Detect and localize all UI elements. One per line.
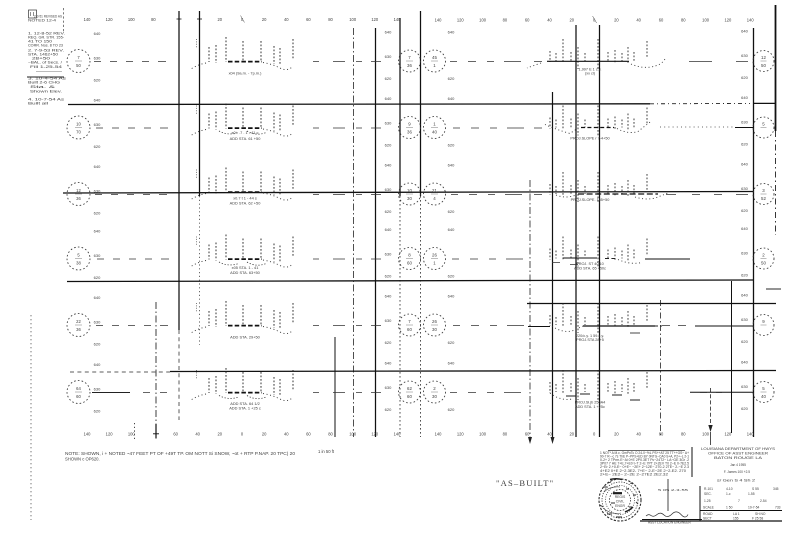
svg-text:PROJ.SLOPE. 155+50: PROJ.SLOPE. 155+50 (571, 198, 610, 202)
svg-text:26: 26 (432, 319, 437, 324)
svg-text:21: 21 (432, 188, 437, 193)
svg-text:(xx cl): (xx cl) (585, 72, 596, 76)
svg-text:SH NO: SH NO (755, 512, 766, 516)
svg-text:120: 120 (371, 432, 379, 437)
svg-text:620: 620 (94, 144, 101, 149)
svg-text:52: 52 (761, 196, 766, 201)
svg-text:30: 30 (432, 394, 437, 399)
svg-text:ENGR: ENGR (615, 504, 625, 508)
svg-text:640: 640 (94, 164, 101, 169)
svg-text:60: 60 (76, 394, 81, 399)
svg-text:620: 620 (741, 208, 748, 213)
svg-text:s/ Gen S 4 Sh 2: s/ Gen S 4 Sh 2 (717, 479, 755, 483)
svg-text:120: 120 (457, 18, 465, 23)
svg-text:60: 60 (306, 17, 311, 22)
svg-text:64: 64 (76, 386, 81, 391)
svg-text:100: 100 (349, 432, 357, 437)
svg-text:38: 38 (76, 261, 81, 266)
svg-text:630: 630 (385, 252, 392, 257)
svg-text:620: 620 (385, 340, 392, 345)
svg-text:630: 630 (741, 317, 748, 322)
svg-text:36: 36 (76, 196, 81, 201)
svg-text:PROJ. ST 40 10: PROJ. ST 40 10 (576, 262, 604, 266)
svg-text:60: 60 (407, 261, 412, 266)
svg-text:REGIS: REGIS (615, 495, 626, 499)
svg-text:140: 140 (747, 18, 755, 23)
svg-text:630: 630 (94, 320, 101, 325)
svg-text:630: 630 (741, 186, 748, 191)
svg-text:50: 50 (76, 63, 81, 68)
svg-text:140: 140 (435, 18, 443, 23)
svg-text:CORR. Nos. 8 TO 23: CORR. Nos. 8 TO 23 (28, 44, 63, 48)
svg-text:20: 20 (570, 18, 575, 23)
svg-text:630: 630 (741, 53, 748, 58)
svg-text:640: 640 (385, 30, 392, 35)
svg-text:50: 50 (761, 63, 766, 68)
svg-text:630: 630 (741, 251, 748, 256)
svg-text:640: 640 (448, 96, 455, 101)
svg-text:80: 80 (328, 17, 333, 22)
svg-text:LA 1: LA 1 (733, 512, 740, 516)
svg-text:620: 620 (741, 75, 748, 80)
svg-text:100: 100 (128, 432, 136, 437)
svg-text:20: 20 (570, 432, 575, 437)
svg-text:Built 2-6 CHG: Built 2-6 CHG (28, 81, 61, 85)
svg-text:12: 12 (761, 55, 766, 60)
svg-text:630: 630 (741, 384, 748, 389)
svg-text:CIVIL: CIVIL (616, 500, 625, 504)
svg-text:630: 630 (385, 385, 392, 390)
svg-text:1-55: 1-55 (748, 492, 755, 496)
svg-text:Sta. &: Sta. & (30, 85, 57, 89)
svg-text:620: 620 (741, 339, 748, 344)
svg-text:Built all: Built all (28, 102, 48, 106)
svg-text:40: 40 (636, 432, 641, 437)
svg-text:20: 20 (218, 432, 223, 437)
svg-text:5 05 2-3-55: 5 05 2-3-55 (658, 488, 689, 492)
svg-text:640: 640 (741, 162, 748, 167)
svg-text:20: 20 (262, 432, 267, 437)
svg-text:ADD STA. 62 +50: ADD STA. 62 +50 (230, 201, 262, 206)
svg-text:620: 620 (448, 407, 455, 412)
svg-text:10-7-54: 10-7-54 (748, 506, 760, 510)
svg-text:640: 640 (385, 361, 392, 366)
svg-text:2-54: 2-54 (760, 499, 767, 503)
svg-text:40: 40 (284, 17, 289, 22)
svg-text:100: 100 (702, 18, 710, 23)
svg-text:ADD STA. 1 +25 c: ADD STA. 1 +25 c (229, 405, 261, 410)
svg-text:40: 40 (284, 432, 289, 437)
svg-text:x0+ .7 . 1 - 41 c: x0+ .7 . 1 - 41 c (232, 130, 259, 135)
svg-text:620: 620 (94, 78, 101, 83)
svg-text:630: 630 (94, 253, 101, 258)
svg-text:640: 640 (448, 163, 455, 168)
svg-text:~BAL. of Secs. /: ~BAL. of Secs. / (28, 61, 62, 65)
svg-text:640: 640 (94, 295, 101, 300)
svg-text:640: 640 (741, 360, 748, 365)
svg-text:620: 620 (448, 209, 455, 214)
svg-text:NOTE: SHOWN, i + NOTED ~47 FEE: NOTE: SHOWN, i + NOTED ~47 FEET PT OF +4… (65, 451, 296, 456)
svg-text:140: 140 (84, 17, 92, 22)
svg-text:1 50: 1 50 (726, 506, 733, 510)
svg-text:140: 140 (394, 432, 402, 437)
svg-text:60: 60 (659, 432, 664, 437)
svg-text:120: 120 (457, 432, 465, 437)
svg-text:733: 733 (775, 506, 781, 510)
svg-text:40: 40 (195, 432, 200, 437)
svg-text:620: 620 (448, 274, 455, 279)
svg-text:60: 60 (407, 327, 412, 332)
svg-text:S 55: S 55 (752, 487, 759, 491)
svg-text:620: 620 (741, 273, 748, 278)
svg-text:120: 120 (106, 432, 114, 437)
svg-text:1-c: 1-c (726, 492, 731, 496)
svg-text:ADD STA. 61 +50: ADD STA. 61 +50 (230, 136, 262, 141)
svg-text:60: 60 (306, 432, 311, 437)
svg-text:PROJ.STA 28+5: PROJ.STA 28+5 (576, 338, 604, 342)
svg-text:PROJ.SLOPE r 7-4+50: PROJ.SLOPE r 7-4+50 (570, 137, 609, 141)
svg-text:640: 640 (741, 293, 748, 298)
svg-text:100: 100 (349, 17, 357, 22)
svg-text:36: 36 (407, 130, 412, 135)
svg-text:620: 620 (385, 274, 392, 279)
svg-text:20: 20 (262, 17, 267, 22)
svg-text:100: 100 (128, 17, 136, 22)
svg-text:ADD STA. 65 +50c: ADD STA. 65 +50c (574, 266, 606, 270)
svg-text:630: 630 (94, 189, 101, 194)
svg-text:2+E~ 2E2~ 2~2E 2~27E2 2E2.: 2+E~ 2E2~ 2~2E 2~27E2 2E2.32 (600, 472, 668, 476)
svg-text:620: 620 (741, 406, 748, 411)
svg-text:640: 640 (448, 30, 455, 35)
svg-text:620: 620 (385, 209, 392, 214)
svg-text:345: 345 (773, 487, 779, 491)
svg-text:"AS–BUILT": "AS–BUILT" (496, 478, 554, 488)
svg-text:620: 620 (385, 143, 392, 148)
svg-text:26: 26 (432, 253, 437, 258)
svg-text:640: 640 (385, 163, 392, 168)
svg-text:PROJ.Sl.jb 250A4: PROJ.Sl.jb 250A4 (575, 401, 606, 405)
svg-text:50: 50 (761, 261, 766, 266)
svg-text:40: 40 (636, 18, 641, 23)
svg-text:SEC.: SEC. (704, 492, 712, 496)
svg-text:620: 620 (94, 342, 101, 347)
svg-text:620: 620 (94, 275, 101, 280)
svg-text:SCALE: SCALE (703, 506, 715, 510)
svg-text:620: 620 (741, 142, 748, 147)
svg-text:62: 62 (407, 386, 412, 391)
svg-text:60: 60 (659, 18, 664, 23)
svg-text:F 25 58: F 25 58 (752, 517, 763, 521)
svg-text:80: 80 (151, 17, 156, 22)
svg-text:100: 100 (702, 432, 710, 437)
svg-text:4-10: 4-10 (726, 487, 733, 491)
svg-text:SHOWN c OP620.: SHOWN c OP620. (65, 457, 100, 462)
svg-text:100: 100 (479, 18, 487, 23)
svg-text:12: 12 (76, 188, 81, 193)
svg-text:640: 640 (448, 361, 455, 366)
svg-text:7: 7 (738, 499, 740, 503)
svg-text:ADD STA. 63+50: ADD STA. 63+50 (230, 270, 260, 275)
svg-text:640: 640 (741, 95, 748, 100)
svg-text:640: 640 (94, 229, 101, 234)
svg-text:640: 640 (741, 226, 748, 231)
svg-text:40: 40 (432, 130, 437, 135)
svg-text:640: 640 (94, 98, 101, 103)
svg-text:620: 620 (385, 407, 392, 412)
svg-text:70: 70 (76, 130, 81, 135)
svg-text:80: 80 (681, 432, 686, 437)
svg-text:20: 20 (614, 18, 619, 23)
svg-text:80: 80 (503, 432, 508, 437)
svg-text:120: 120 (371, 17, 379, 22)
svg-text:620: 620 (448, 143, 455, 148)
svg-text:630: 630 (385, 121, 392, 126)
svg-text:630: 630 (385, 318, 392, 323)
svg-text:40: 40 (547, 18, 552, 23)
svg-text:630: 630 (385, 187, 392, 192)
svg-text:F. James 100 +2.5: F. James 100 +2.5 (724, 470, 750, 474)
svg-text:OFFICE OF ASST ENGINEER: OFFICE OF ASST ENGINEER (708, 451, 768, 455)
svg-text:155: 155 (733, 517, 739, 521)
svg-text:Jan 4 1955: Jan 4 1955 (730, 463, 746, 467)
svg-text:ADD STA. 1 +25c: ADD STA. 1 +25c (575, 405, 605, 409)
svg-text:BATON ROUGE LA: BATON ROUGE LA (714, 456, 763, 460)
svg-text:80: 80 (503, 18, 508, 23)
svg-text:30: 30 (432, 327, 437, 332)
svg-text:60: 60 (407, 394, 412, 399)
svg-text:630: 630 (385, 54, 392, 59)
svg-text:Shown Elev.: Shown Elev. (30, 90, 62, 94)
svg-text:1 in 50 ft: 1 in 50 ft (318, 449, 335, 454)
svg-text:140: 140 (435, 432, 443, 437)
svg-text:630: 630 (94, 387, 101, 392)
svg-text:630: 630 (741, 120, 748, 125)
svg-text:36: 36 (76, 327, 81, 332)
svg-text:640: 640 (385, 294, 392, 299)
svg-text:36: 36 (407, 63, 412, 68)
svg-text:120: 120 (724, 18, 732, 23)
svg-text:20: 20 (614, 432, 619, 437)
svg-text:30: 30 (407, 196, 412, 201)
svg-text:100: 100 (479, 432, 487, 437)
svg-text:620: 620 (94, 211, 101, 216)
svg-text:20: 20 (218, 17, 223, 22)
svg-text:120: 120 (106, 17, 114, 22)
svg-text:1-25: 1-25 (704, 499, 711, 503)
svg-text:40: 40 (761, 394, 766, 399)
svg-text:ADD STA. 29+50: ADD STA. 29+50 (230, 335, 260, 340)
svg-text:640: 640 (94, 31, 101, 36)
svg-text:40: 40 (547, 432, 552, 437)
svg-text:620: 620 (94, 409, 101, 414)
svg-text:80: 80 (328, 432, 333, 437)
svg-text:620: 620 (448, 76, 455, 81)
svg-text:x04 (9a.m. - 7p.m.): x04 (9a.m. - 7p.m.) (229, 71, 263, 76)
svg-text:640: 640 (741, 29, 748, 34)
svg-text:640: 640 (385, 96, 392, 101)
svg-text:45: 45 (432, 55, 437, 60)
svg-text:60: 60 (525, 432, 530, 437)
svg-text:630: 630 (94, 56, 101, 61)
svg-text:10: 10 (76, 122, 81, 127)
svg-text:640: 640 (94, 362, 101, 367)
svg-text:Fill 1-25-54: Fill 1-25-54 (30, 65, 62, 69)
svg-text:ROAD: ROAD (703, 512, 713, 516)
svg-text:120: 120 (724, 432, 732, 437)
svg-text:60: 60 (525, 18, 530, 23)
svg-text:620: 620 (385, 76, 392, 81)
svg-text:640: 640 (448, 294, 455, 299)
svg-text:60: 60 (173, 432, 178, 437)
svg-text:LOUISIANA DEPARTMENT OF HWY: LOUISIANA DEPARTMENT OF HWYS (701, 447, 776, 451)
svg-text:140: 140 (747, 432, 755, 437)
svg-text:R-101: R-101 (704, 487, 713, 491)
svg-text:620: 620 (448, 340, 455, 345)
svg-text:10: 10 (407, 188, 412, 193)
svg-text:140: 140 (84, 432, 92, 437)
svg-text:NOTED 12-4: NOTED 12-4 (28, 19, 56, 23)
svg-text:22: 22 (76, 319, 81, 324)
svg-text:SECT: SECT (703, 517, 712, 521)
svg-text:640: 640 (448, 227, 455, 232)
svg-text:630: 630 (94, 122, 101, 127)
svg-text:80: 80 (681, 18, 686, 23)
svg-text:640: 640 (385, 227, 392, 232)
